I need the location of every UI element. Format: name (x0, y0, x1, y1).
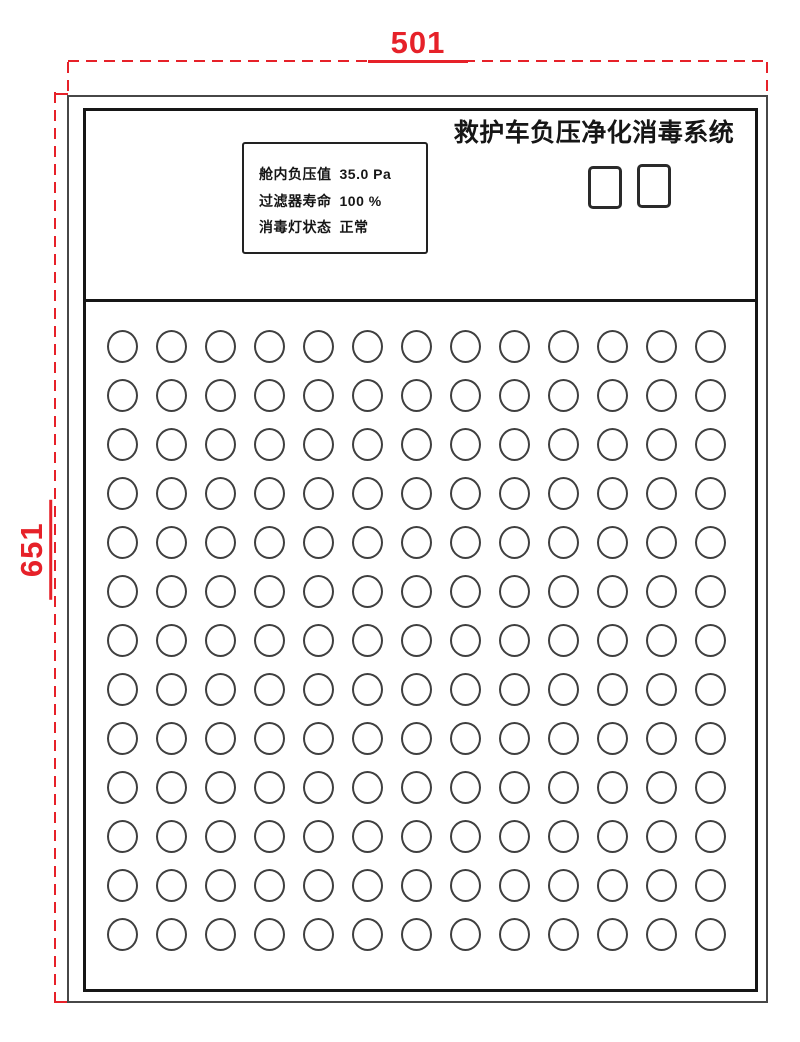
vent-hole (597, 771, 628, 804)
vent-hole (499, 673, 530, 706)
vent-hole (548, 624, 579, 657)
vent-hole (499, 624, 530, 657)
vent-hole (499, 379, 530, 412)
vent-hole (401, 673, 432, 706)
filter-label: 过滤器寿命 (259, 193, 332, 209)
vent-hole (646, 820, 677, 853)
vent-hole (205, 575, 236, 608)
vent-hole (450, 673, 481, 706)
vent-hole (499, 477, 530, 510)
vent-hole (597, 722, 628, 755)
vent-hole (156, 918, 187, 951)
dimension-tick-bottom (54, 1001, 68, 1003)
vent-hole (303, 330, 334, 363)
vent-hole (450, 918, 481, 951)
vent-hole (107, 918, 138, 951)
vent-hole (646, 869, 677, 902)
vent-hole (548, 526, 579, 559)
vent-hole (303, 624, 334, 657)
vent-hole (401, 379, 432, 412)
vent-hole (695, 673, 726, 706)
vent-hole (695, 428, 726, 461)
vent-hole (205, 918, 236, 951)
vent-hole (695, 477, 726, 510)
vent-hole (548, 722, 579, 755)
vent-hole (646, 428, 677, 461)
vent-hole (695, 575, 726, 608)
vent-hole (156, 526, 187, 559)
vent-hole (303, 379, 334, 412)
vent-hole (401, 330, 432, 363)
vent-hole (695, 820, 726, 853)
vent-hole (254, 918, 285, 951)
vent-hole (205, 379, 236, 412)
vent-hole (499, 771, 530, 804)
vent-hole (352, 428, 383, 461)
dimension-height-label: 651 (16, 500, 52, 600)
dimension-width-label: 501 (368, 27, 468, 63)
vent-hole (646, 771, 677, 804)
vent-hole (548, 575, 579, 608)
vent-hole (597, 379, 628, 412)
vent-hole (156, 820, 187, 853)
vent-hole (499, 820, 530, 853)
filter-value: 100 % (340, 193, 382, 209)
vent-hole (401, 428, 432, 461)
vent-hole (205, 869, 236, 902)
status-display-screen: 舱内负压值35.0 Pa 过滤器寿命100 % 消毒灯状态正常 (242, 142, 428, 254)
vent-hole (450, 575, 481, 608)
vent-hole (303, 526, 334, 559)
vent-hole (695, 526, 726, 559)
vent-hole (597, 624, 628, 657)
ventilation-hole-grid (107, 330, 726, 951)
vent-hole (499, 428, 530, 461)
vent-hole (303, 477, 334, 510)
vent-hole (303, 918, 334, 951)
status-line-lamp: 消毒灯状态正常 (259, 214, 391, 241)
vent-hole (695, 869, 726, 902)
vent-hole (695, 771, 726, 804)
vent-hole (401, 918, 432, 951)
vent-hole (254, 428, 285, 461)
vent-hole (597, 575, 628, 608)
vent-hole (597, 673, 628, 706)
vent-hole (401, 722, 432, 755)
vent-hole (548, 771, 579, 804)
vent-hole (156, 771, 187, 804)
vent-hole (548, 673, 579, 706)
vent-hole (401, 575, 432, 608)
vent-hole (401, 477, 432, 510)
vent-hole (156, 477, 187, 510)
vent-hole (107, 673, 138, 706)
vent-hole (205, 428, 236, 461)
vent-hole (597, 428, 628, 461)
vent-hole (597, 477, 628, 510)
vent-hole (695, 379, 726, 412)
vent-hole (646, 575, 677, 608)
vent-hole (303, 869, 334, 902)
vent-hole (254, 477, 285, 510)
vent-hole (107, 869, 138, 902)
vent-hole (352, 379, 383, 412)
vent-hole (156, 673, 187, 706)
vent-hole (450, 722, 481, 755)
vent-hole (303, 673, 334, 706)
vent-hole (205, 624, 236, 657)
vent-hole (254, 575, 285, 608)
vent-hole (401, 624, 432, 657)
vent-hole (107, 722, 138, 755)
vent-hole (156, 379, 187, 412)
control-button-2 (637, 164, 671, 208)
vent-hole (254, 722, 285, 755)
vent-hole (646, 918, 677, 951)
vent-hole (450, 624, 481, 657)
vent-hole (107, 477, 138, 510)
vent-hole (646, 624, 677, 657)
pressure-label: 舱内负压值 (259, 166, 332, 182)
vent-hole (205, 526, 236, 559)
vent-hole (205, 477, 236, 510)
vent-hole (303, 722, 334, 755)
vent-hole (156, 722, 187, 755)
vent-hole (646, 673, 677, 706)
vent-hole (450, 379, 481, 412)
vent-hole (107, 526, 138, 559)
vent-hole (695, 722, 726, 755)
vent-hole (352, 722, 383, 755)
vent-hole (352, 330, 383, 363)
vent-hole (107, 820, 138, 853)
vent-hole (352, 820, 383, 853)
vent-hole (352, 575, 383, 608)
vent-hole (352, 673, 383, 706)
vent-hole (646, 477, 677, 510)
vent-hole (254, 820, 285, 853)
vent-hole (450, 820, 481, 853)
vent-hole (156, 869, 187, 902)
vent-hole (548, 869, 579, 902)
header-divider-line (84, 299, 757, 302)
vent-hole (156, 575, 187, 608)
vent-hole (107, 624, 138, 657)
vent-hole (646, 379, 677, 412)
dimension-extension-top-left (67, 62, 69, 95)
vent-hole (156, 624, 187, 657)
vent-hole (597, 918, 628, 951)
vent-hole (499, 869, 530, 902)
vent-hole (156, 330, 187, 363)
vent-hole (401, 820, 432, 853)
vent-hole (646, 526, 677, 559)
vent-hole (695, 330, 726, 363)
vent-hole (450, 526, 481, 559)
vent-hole (450, 869, 481, 902)
technical-drawing-canvas: 501 651 救护车负压净化消毒系统 舱内负压值35.0 Pa 过滤器寿命10… (0, 0, 800, 1042)
vent-hole (303, 428, 334, 461)
vent-hole (695, 918, 726, 951)
vent-hole (205, 771, 236, 804)
vent-hole (597, 820, 628, 853)
vent-hole (352, 869, 383, 902)
vent-hole (548, 379, 579, 412)
vent-hole (597, 869, 628, 902)
vent-hole (499, 526, 530, 559)
vent-hole (254, 526, 285, 559)
control-button-1 (588, 166, 622, 209)
vent-hole (499, 918, 530, 951)
vent-hole (303, 820, 334, 853)
vent-hole (254, 624, 285, 657)
vent-hole (646, 330, 677, 363)
vent-hole (352, 918, 383, 951)
vent-hole (450, 771, 481, 804)
vent-hole (646, 722, 677, 755)
vent-hole (205, 820, 236, 853)
vent-hole (254, 771, 285, 804)
vent-hole (303, 575, 334, 608)
vent-hole (499, 575, 530, 608)
vent-hole (156, 428, 187, 461)
vent-hole (597, 526, 628, 559)
vent-hole (205, 673, 236, 706)
vent-hole (107, 771, 138, 804)
vent-hole (254, 673, 285, 706)
vent-hole (450, 477, 481, 510)
vent-hole (303, 771, 334, 804)
vent-hole (352, 477, 383, 510)
vent-hole (499, 722, 530, 755)
lamp-value: 正常 (340, 219, 369, 235)
vent-hole (548, 477, 579, 510)
system-title: 救护车负压净化消毒系统 (448, 113, 740, 149)
vent-hole (107, 575, 138, 608)
pressure-value: 35.0 Pa (340, 166, 392, 182)
dimension-extension-top-right (766, 62, 768, 95)
vent-hole (548, 330, 579, 363)
vent-hole (205, 330, 236, 363)
vent-hole (450, 330, 481, 363)
vent-hole (401, 771, 432, 804)
vent-hole (401, 869, 432, 902)
vent-hole (352, 771, 383, 804)
status-line-pressure: 舱内负压值35.0 Pa (259, 161, 391, 188)
vent-hole (548, 820, 579, 853)
vent-hole (254, 379, 285, 412)
vent-hole (499, 330, 530, 363)
status-line-filter: 过滤器寿命100 % (259, 188, 391, 215)
vent-hole (401, 526, 432, 559)
vent-hole (352, 624, 383, 657)
vent-hole (695, 624, 726, 657)
vent-hole (548, 918, 579, 951)
vent-hole (205, 722, 236, 755)
vent-hole (597, 330, 628, 363)
dimension-tick-top (54, 93, 68, 95)
vent-hole (548, 428, 579, 461)
vent-hole (352, 526, 383, 559)
vent-hole (450, 428, 481, 461)
lamp-label: 消毒灯状态 (259, 219, 332, 235)
dimension-line-left (54, 92, 56, 1003)
vent-hole (254, 330, 285, 363)
vent-hole (107, 379, 138, 412)
vent-hole (107, 330, 138, 363)
vent-hole (107, 428, 138, 461)
vent-hole (254, 869, 285, 902)
